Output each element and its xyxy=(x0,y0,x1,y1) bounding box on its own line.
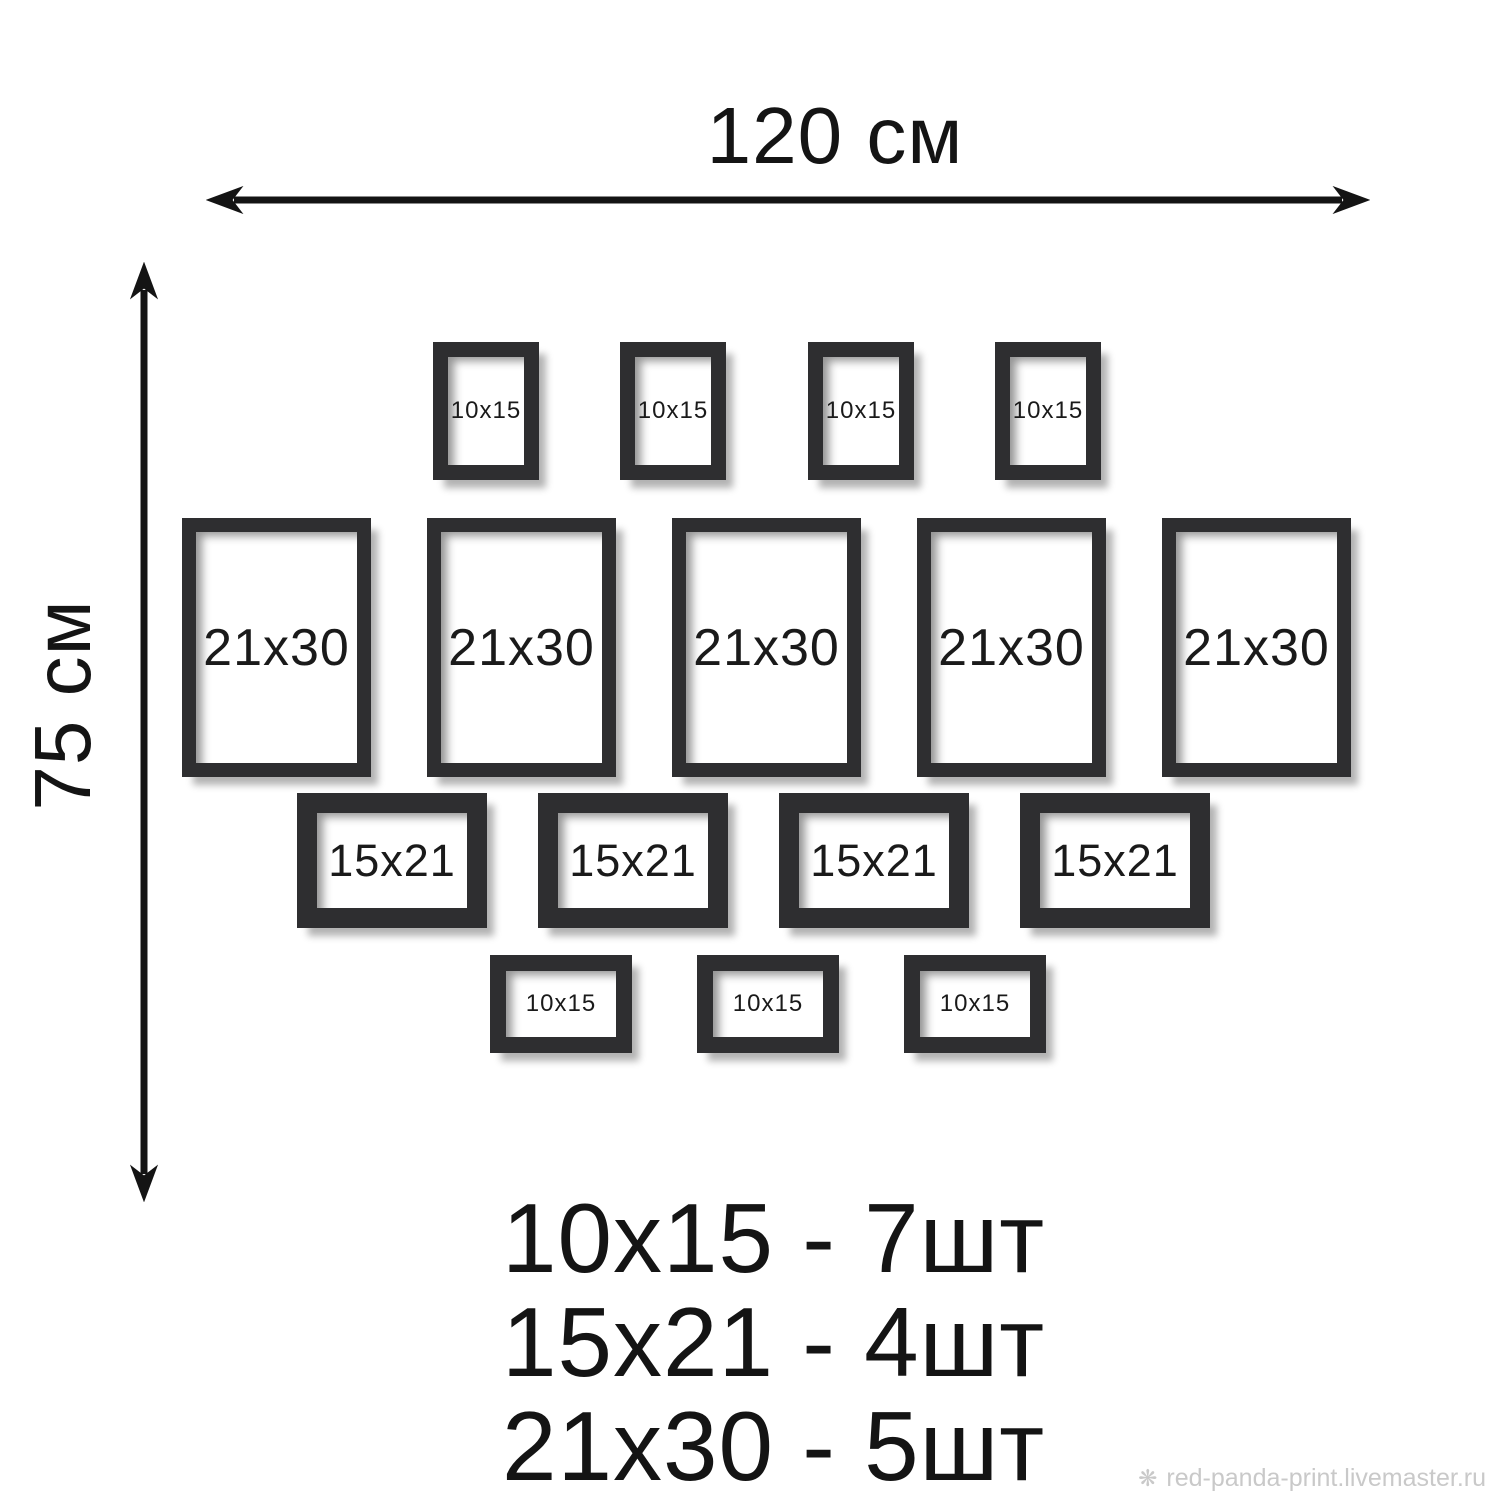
frame-size-label: 15x21 xyxy=(1051,838,1179,883)
picture-frame-21x30: 21x30 xyxy=(182,518,371,777)
watermark-text: red-panda-print.livemaster.ru xyxy=(1166,1464,1486,1493)
frame-size-label: 21x30 xyxy=(448,622,595,674)
frame-size-label: 10x15 xyxy=(940,992,1010,1016)
width-dimension-arrow xyxy=(206,186,1370,214)
picture-frame-15x21: 15x21 xyxy=(779,793,969,928)
frame-size-label: 10x15 xyxy=(451,399,521,423)
frame-size-label: 21x30 xyxy=(693,622,840,674)
frame-size-label: 15x21 xyxy=(569,838,697,883)
height-dimension-arrow xyxy=(130,262,158,1202)
picture-frame-21x30: 21x30 xyxy=(427,518,616,777)
frame-size-label: 10x15 xyxy=(638,399,708,423)
frame-size-label: 15x21 xyxy=(328,838,456,883)
frame-size-label: 10x15 xyxy=(733,992,803,1016)
picture-frame-10x15: 10x15 xyxy=(995,342,1101,480)
picture-frame-21x30: 21x30 xyxy=(917,518,1106,777)
legend-line-15x21: 15x21 - 4шт xyxy=(502,1290,1045,1394)
picture-frame-21x30: 21x30 xyxy=(1162,518,1351,777)
frame-size-label: 21x30 xyxy=(938,622,1085,674)
legend-line-21x30: 21x30 - 5шт xyxy=(502,1394,1045,1498)
picture-frame-10x15: 10x15 xyxy=(904,955,1046,1053)
gallery-wall-layout-diagram: 120 см 75 см 10x1510x1510x1510x1521x3021… xyxy=(0,0,1500,1500)
frame-size-label: 10x15 xyxy=(1013,399,1083,423)
flower-icon: ❋ xyxy=(1138,1467,1157,1490)
width-dimension-label: 120 см xyxy=(707,90,964,182)
watermark: ❋ red-panda-print.livemaster.ru xyxy=(1138,1464,1486,1493)
picture-frame-15x21: 15x21 xyxy=(297,793,487,928)
picture-frame-10x15: 10x15 xyxy=(620,342,726,480)
picture-frame-10x15: 10x15 xyxy=(808,342,914,480)
frame-count-legend: 10x15 - 7шт 15x21 - 4шт 21x30 - 5шт xyxy=(502,1186,1045,1498)
picture-frame-10x15: 10x15 xyxy=(490,955,632,1053)
frame-size-label: 10x15 xyxy=(826,399,896,423)
frame-size-label: 21x30 xyxy=(203,622,350,674)
frame-size-label: 21x30 xyxy=(1183,622,1330,674)
picture-frame-15x21: 15x21 xyxy=(1020,793,1210,928)
picture-frame-10x15: 10x15 xyxy=(697,955,839,1053)
picture-frame-21x30: 21x30 xyxy=(672,518,861,777)
frame-size-label: 10x15 xyxy=(526,992,596,1016)
legend-line-10x15: 10x15 - 7шт xyxy=(502,1186,1045,1290)
picture-frame-15x21: 15x21 xyxy=(538,793,728,928)
height-dimension-label: 75 см xyxy=(17,599,109,810)
frame-size-label: 15x21 xyxy=(810,838,938,883)
picture-frame-10x15: 10x15 xyxy=(433,342,539,480)
